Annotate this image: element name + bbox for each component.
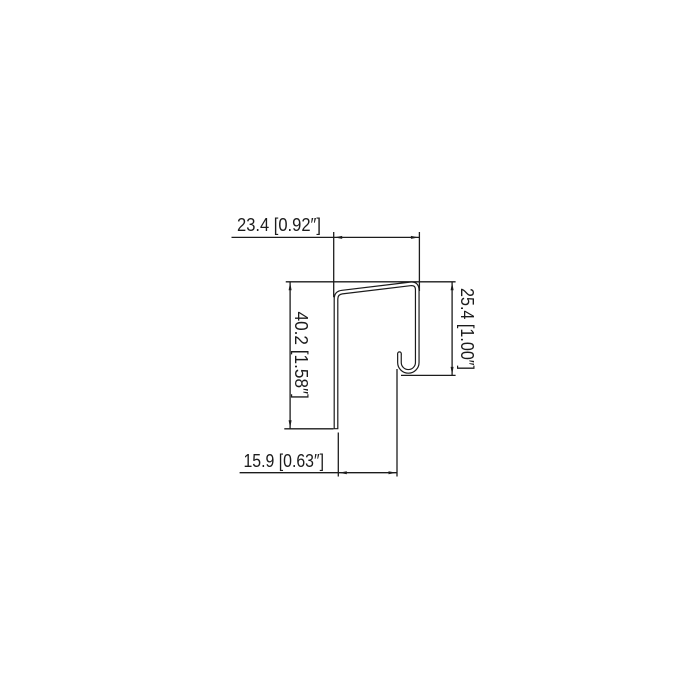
svg-text:25.4 [1.00″]: 25.4 [1.00″] (457, 288, 477, 370)
svg-text:15.9 [0.63″]: 15.9 [0.63″] (244, 451, 325, 471)
svg-text:40.2 [1.58″]: 40.2 [1.58″] (291, 312, 311, 399)
svg-text:23.4 [0.92″]: 23.4 [0.92″] (237, 215, 321, 235)
